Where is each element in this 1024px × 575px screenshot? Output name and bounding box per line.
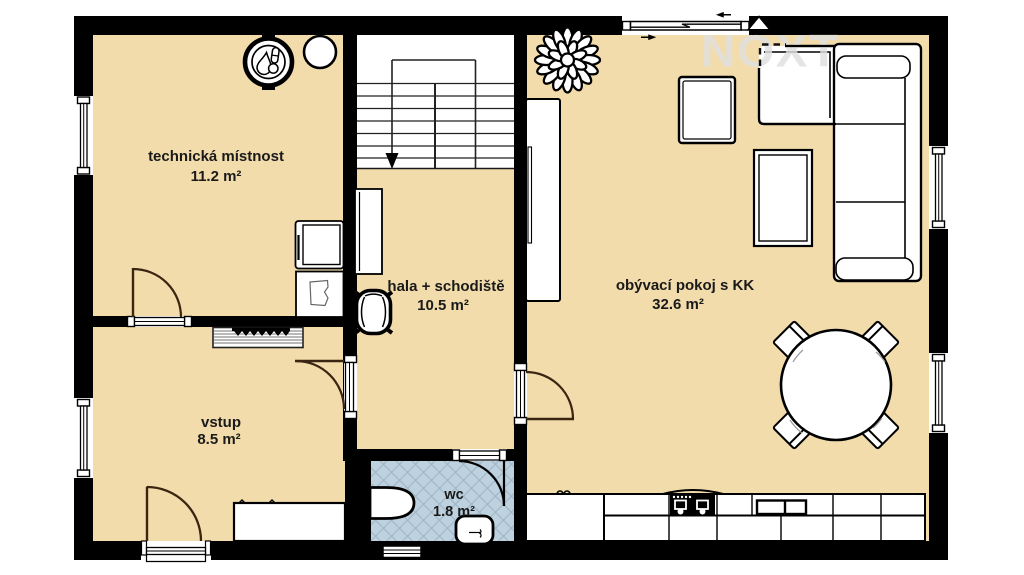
svg-text:11.2 m²: 11.2 m²: [191, 168, 242, 185]
svg-text:NOXT: NOXT: [701, 26, 840, 76]
svg-text:technická místnost: technická místnost: [148, 148, 284, 165]
svg-text:wc: wc: [443, 487, 463, 503]
svg-text:32.6 m²: 32.6 m²: [652, 296, 704, 313]
svg-text:vstup: vstup: [201, 414, 241, 431]
svg-text:10.5 m²: 10.5 m²: [417, 297, 469, 314]
svg-text:obývací pokoj s KK: obývací pokoj s KK: [616, 277, 755, 294]
svg-text:1.8 m²: 1.8 m²: [433, 504, 475, 520]
svg-text:8.5 m²: 8.5 m²: [197, 431, 240, 448]
svg-text:hala + schodiště: hala + schodiště: [387, 278, 504, 295]
